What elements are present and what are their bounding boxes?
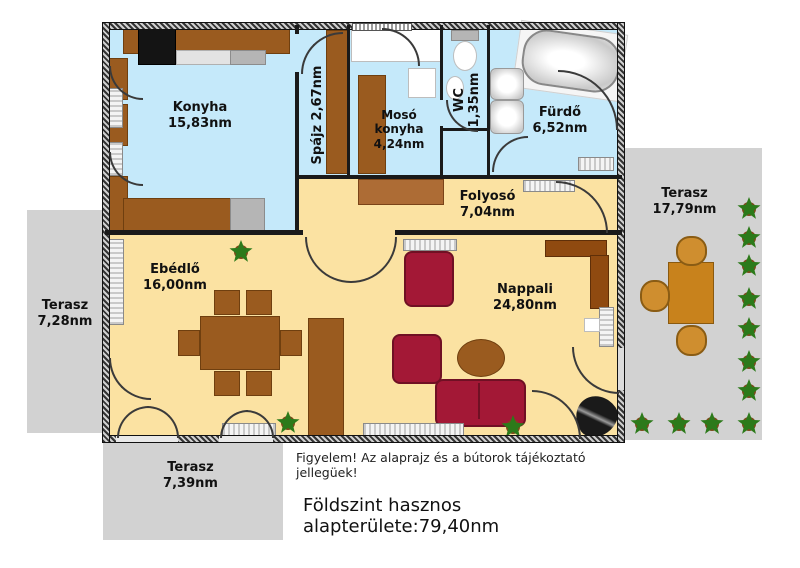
room-name: Terasz	[28, 298, 102, 314]
laundry-table	[408, 68, 436, 98]
radiator	[599, 307, 614, 347]
room-area: 7,28nm	[28, 314, 102, 330]
radiator	[109, 88, 123, 128]
room-name: Fürdő	[515, 105, 605, 121]
room-area: 7,04nm	[440, 205, 535, 221]
terrace-chair	[640, 280, 670, 312]
plant-icon	[737, 317, 761, 341]
kitchen-counter-bottom-gray	[230, 198, 265, 232]
label-furdo: Fürdő 6,52nm	[515, 105, 605, 138]
plant-icon	[737, 379, 761, 403]
plant-icon	[667, 412, 691, 436]
room-area: 7,39nm	[128, 476, 253, 492]
room-name: Folyosó	[440, 189, 535, 205]
wall	[347, 25, 350, 177]
room-area: 1,35nm	[468, 62, 483, 138]
plant-icon	[737, 254, 761, 278]
room-area: 2,67nm	[310, 66, 325, 121]
radiator	[578, 157, 614, 171]
plant-icon	[276, 411, 300, 435]
dining-chair	[280, 330, 302, 356]
label-konyha: Konyha 15,83nm	[150, 100, 250, 133]
label-terasz-right: Terasz 17,79nm	[637, 186, 732, 219]
radiator	[109, 239, 124, 325]
terrace-table	[668, 262, 714, 324]
bath-sink-1	[490, 68, 524, 100]
dining-chair	[246, 290, 272, 315]
room-area: 17,79nm	[637, 202, 732, 218]
room-name: Nappali	[470, 282, 580, 298]
room-area: 4,24nm	[370, 137, 428, 151]
label-ebedlo: Ebédlő 16,00nm	[125, 262, 225, 295]
room-name: Spájz	[310, 125, 325, 164]
label-wc: WC 1,35nm	[453, 62, 483, 138]
tv-cabinet-vertical	[590, 255, 609, 309]
label-terasz-left: Terasz 7,28nm	[28, 298, 102, 331]
label-folyoso: Folyosó 7,04nm	[440, 189, 535, 222]
dining-chair	[178, 330, 200, 356]
room-name: Konyha	[150, 100, 250, 116]
tall-cabinet	[308, 318, 344, 438]
room-name: Ebédlő	[125, 262, 225, 278]
room-area: 24,80nm	[470, 298, 580, 314]
room-area: 6,52nm	[515, 121, 605, 137]
terrace-chair	[676, 236, 707, 266]
room-name: Terasz	[128, 460, 253, 476]
dining-chair	[214, 371, 240, 396]
disclaimer-text: Figyelem! Az alaprajz és a bútorok tájék…	[296, 450, 626, 480]
toilet-tank	[451, 30, 479, 41]
room-name: Terasz	[637, 186, 732, 202]
label-terasz-bottom: Terasz 7,39nm	[128, 460, 253, 493]
armchair	[404, 251, 454, 307]
hallway-cabinet	[358, 179, 444, 205]
armchair	[392, 334, 442, 384]
floor-plan-canvas: Konyha 15,83nm Spájz 2,67nm Mosó konyha …	[0, 0, 800, 568]
label-moso-konyha: Mosó konyha 4,24nm	[370, 108, 428, 151]
wall	[295, 175, 622, 179]
room-name: Mosó konyha	[370, 108, 428, 137]
room-area: 15,83nm	[150, 116, 250, 132]
room-area: 16,00nm	[125, 278, 225, 294]
door-opening	[295, 34, 299, 72]
plant-icon	[737, 350, 761, 374]
plant-icon	[700, 412, 724, 436]
room-name: WC	[453, 62, 468, 138]
plant-icon	[737, 197, 761, 221]
label-spajz: Spájz 2,67nm	[311, 55, 329, 175]
radiator	[403, 239, 457, 251]
thermostat	[584, 318, 600, 332]
plant-icon	[229, 240, 253, 264]
sofa-divider	[478, 383, 480, 419]
plant-icon	[630, 412, 654, 436]
label-nappali: Nappali 24,80nm	[470, 282, 580, 315]
terrace-chair	[676, 325, 707, 356]
plant-icon	[737, 287, 761, 311]
door-opening	[303, 230, 395, 235]
dining-table	[200, 316, 280, 370]
kitchen-worktop	[176, 50, 232, 65]
total-area-text: Földszint hasznos alapterülete:79,40nm	[303, 495, 643, 537]
dining-chair	[246, 371, 272, 396]
plant-icon	[737, 226, 761, 250]
coffee-table	[457, 339, 505, 377]
stove	[138, 29, 176, 65]
kitchen-counter-bottom	[123, 198, 232, 232]
kitchen-sink-counter	[230, 50, 266, 65]
door-opening	[440, 100, 443, 126]
plant-icon	[737, 412, 761, 436]
wall	[487, 25, 490, 177]
